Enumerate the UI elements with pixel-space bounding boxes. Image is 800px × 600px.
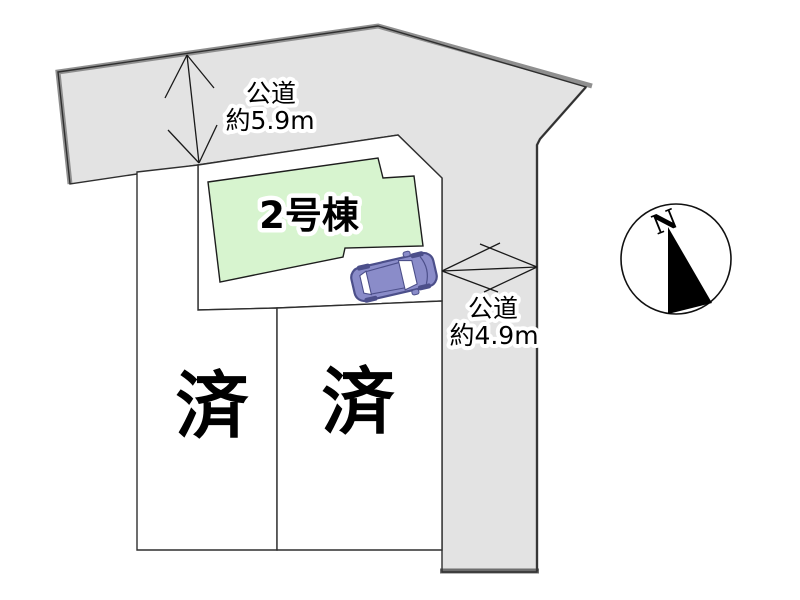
top-road-width-label: 約5.9m: [225, 106, 314, 135]
top-road-name-label: 公道: [246, 79, 296, 108]
right-road-name-label: 公道: [468, 294, 518, 323]
plot-plan-canvas: 公道 約5.9m 公道 約4.9m 2号棟 済 済 N: [0, 0, 800, 600]
plot-plan-diagram: 公道 約5.9m 公道 約4.9m 2号棟 済 済 N: [0, 0, 800, 600]
right-lot-sold-label: 済: [322, 360, 396, 445]
right-road-width-label: 約4.9m: [449, 321, 538, 350]
road-right-border: [537, 87, 586, 571]
building-2-label: 2号棟: [259, 194, 360, 237]
left-lot-sold-label: 済: [176, 364, 250, 449]
compass: N: [621, 203, 731, 314]
